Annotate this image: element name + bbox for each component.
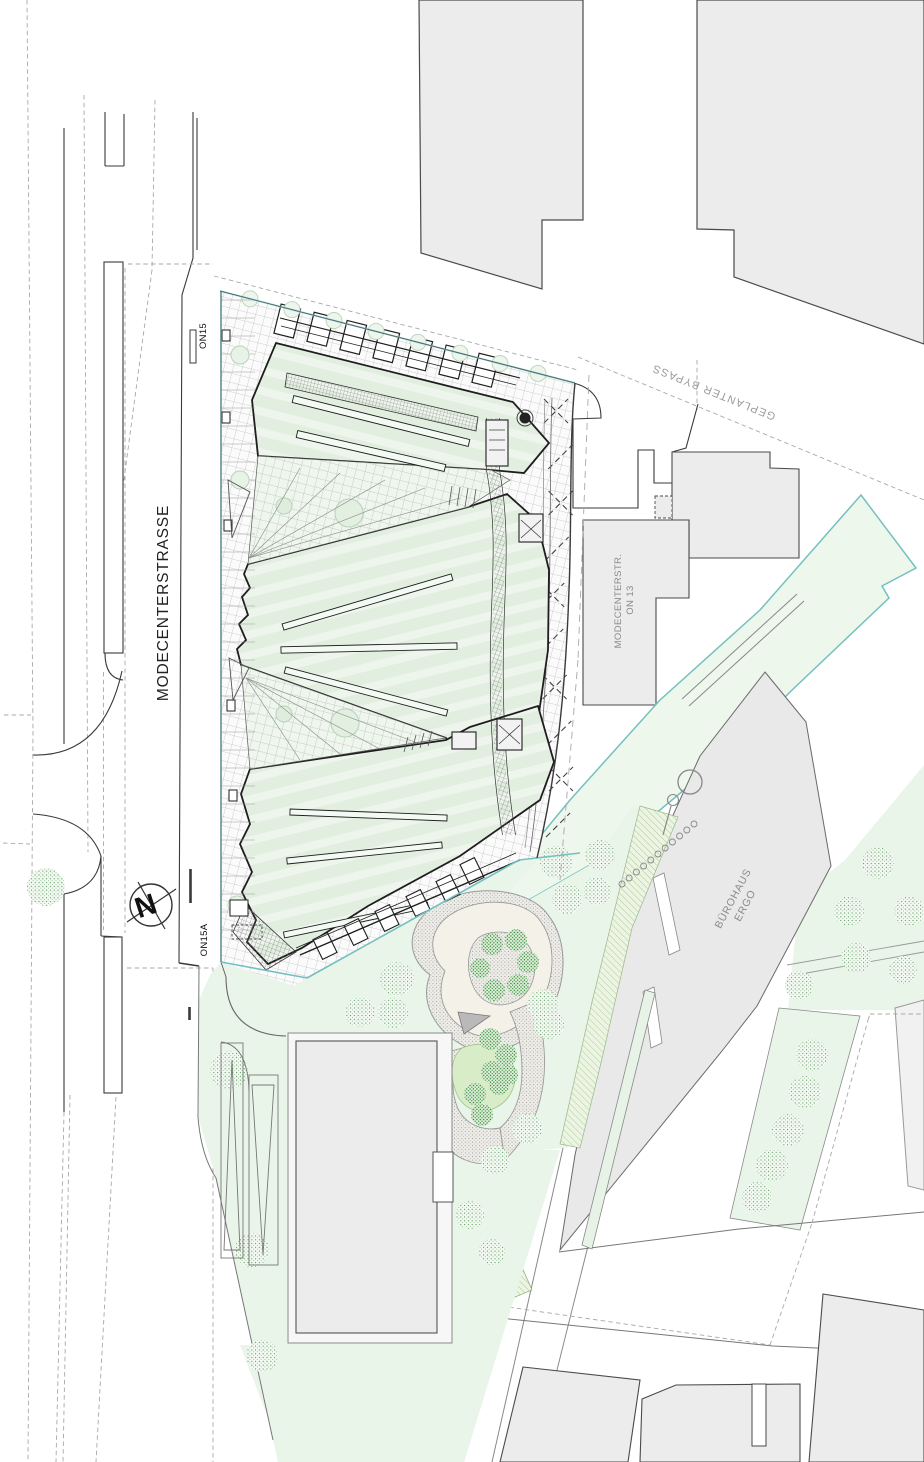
svg-text:ON15: ON15 xyxy=(198,323,209,349)
svg-text:ON 13: ON 13 xyxy=(625,585,636,614)
svg-text:MODECENTERSTR.: MODECENTERSTR. xyxy=(613,554,624,649)
svg-text:MODECENTERSTRASSE: MODECENTERSTRASSE xyxy=(155,505,172,701)
svg-text:ON15A: ON15A xyxy=(199,923,210,956)
